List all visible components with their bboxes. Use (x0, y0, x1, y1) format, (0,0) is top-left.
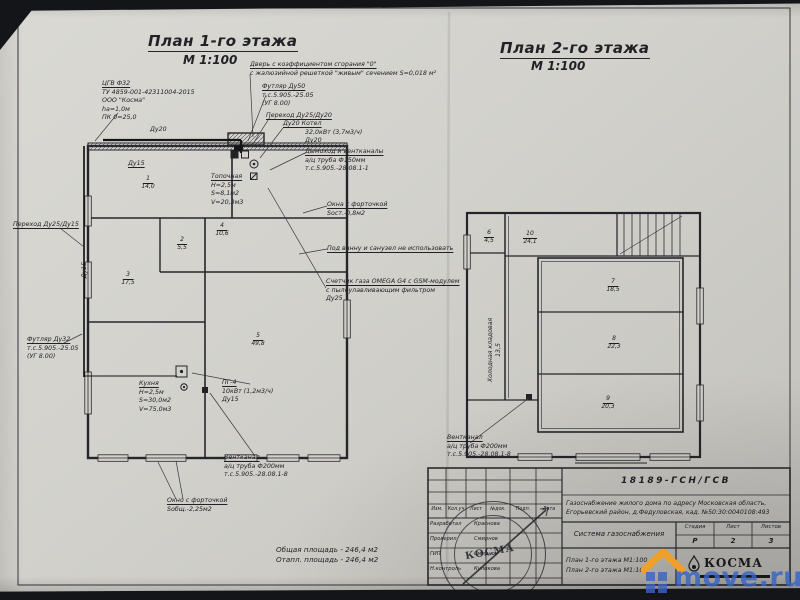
move-pixel-icon (658, 584, 667, 593)
room-label-1: 114,0 (136, 176, 160, 191)
floor2-scale: М 1:100 (531, 60, 585, 72)
room-label-10: 1024,1 (518, 231, 542, 246)
sheets-label: Листов (752, 525, 790, 530)
annotation-ventkanal-f1: Вентканал а/ц труба Ф200мм т.с.5.905.-28… (224, 454, 304, 480)
label-du15-room: Ду15 (128, 160, 156, 169)
annotation-futlyar32: Футляр Ду32 т.с.5.905.-25.05 (УГ 8.00) (27, 336, 97, 362)
room-label-4: 410,6 (210, 223, 234, 238)
doc-number: 18189-ГСН/ГСВ (562, 477, 790, 486)
annotation-cgv: ЦГВ Ф32 ТУ 4859-001-42311004-2015 ООО "К… (102, 80, 212, 123)
stairs-hatch (617, 213, 682, 256)
annotation-kotel: Ду20 Котел 32,0кВт (3,7м3/ч) Ду20 (283, 120, 378, 146)
annotation-okna: Окна с форточкой Sост.-0,8м2 (327, 201, 397, 218)
annotation-pg4: ПГ-4 10кВт (1,2м3/ч) Ду15 (222, 379, 292, 405)
move-watermark: move.ru (618, 540, 800, 600)
tb-col-izm: Изм. (428, 508, 446, 513)
project-name: Газоснабжение жилого дома по адресу Моск… (566, 499, 790, 518)
room-label-5: 549,8 (246, 333, 270, 348)
move-pixel-icon (646, 584, 655, 593)
move-watermark-text: move.ru (674, 564, 800, 591)
stage-label: Стадия (676, 525, 714, 530)
move-pixel-icon (646, 572, 655, 581)
annotation-dymohod: Дымоход и вентканалы а/ц труба Ф150мм т.… (305, 148, 400, 174)
sheet-label: Лист (714, 525, 752, 530)
room-label-6: 64,5 (477, 230, 501, 245)
room-label-9: 920,3 (596, 396, 620, 411)
move-pixel-icon (658, 572, 667, 581)
annotation-topochnaya: Топочная Н=2,5м S=8,1м2 V=20,3м3 (211, 173, 266, 207)
blueprint-photo: План 1-го этажа М 1:100 План 2-го этажа … (0, 0, 800, 600)
annotation-schetchik: Счетчик газа OMEGA G4 с GSM-модулем с пы… (326, 278, 466, 304)
label-du15-riser: Ду15 (72, 258, 89, 282)
tb-col-data: Дата (536, 508, 562, 513)
annotation-kuhnya: Кухня Н=2,5м S=30,0м2 V=75,0м3 (139, 380, 194, 414)
room-label-3: 317,5 (116, 272, 140, 287)
room-label-7: 718,5 (601, 279, 625, 294)
label-du20-pipe: Ду20 (150, 126, 180, 135)
annotation-vannu: Под ванну и санузел не использовать (327, 245, 467, 254)
annotation-door: Дверь с коэффициентом сгорания "0" с жал… (250, 61, 460, 78)
floor1-scale: М 1:100 (183, 54, 237, 66)
room-label-2: 25,5 (170, 237, 194, 252)
annotation-okno: Окно с форточкой Sобщ.-2,25м2 (167, 497, 237, 514)
floor2-title: План 2-го этажа (500, 41, 650, 59)
annotation-perehod-2515: Переход Ду25/Ду15 (13, 221, 83, 230)
total-areas: Общая площадь - 246,4 м2 Отапл. площадь … (276, 545, 416, 564)
system-name: Система газоснабжения (564, 530, 674, 538)
room-label-8: 822,3 (602, 336, 626, 351)
annotation-ventkanal-f2: Вентканал а/ц труба Ф200мм т.с.5.905.-28… (447, 434, 527, 460)
floor1-title: План 1-го этажа (148, 34, 298, 52)
annotation-futlyar50: Футляр Ду50 т.с.5.905.-25.05 (УГ 8.00) (262, 83, 342, 109)
label-kladovaya: Холодная кладовая 13,5 (478, 295, 504, 405)
